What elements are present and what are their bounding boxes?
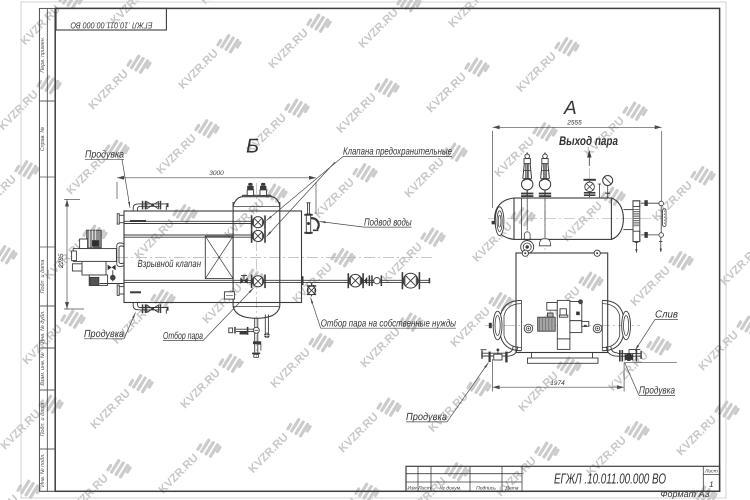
svg-text:KVZR.RU: KVZR.RU <box>89 387 133 431</box>
svg-text:2555: 2555 <box>566 120 582 127</box>
svg-text:Дата: Дата <box>504 485 518 491</box>
svg-text:KVZR.RU: KVZR.RU <box>493 135 537 179</box>
svg-text:3000: 3000 <box>209 170 224 177</box>
svg-text:KVZR.RU: KVZR.RU <box>179 367 223 411</box>
svg-text:KVZR.RU: KVZR.RU <box>651 179 695 223</box>
svg-text:KVZR.RU: KVZR.RU <box>157 452 201 496</box>
svg-text:KVZR.RU: KVZR.RU <box>0 408 43 452</box>
svg-text:KVZR.RU: KVZR.RU <box>697 329 741 373</box>
svg-text:KVZR.RU: KVZR.RU <box>357 6 401 50</box>
svg-text:1: 1 <box>709 480 713 489</box>
svg-text:KVZR.RU: KVZR.RU <box>471 220 515 264</box>
svg-text:Продувка: Продувка <box>84 329 124 340</box>
svg-text:Отбор пара: Отбор пара <box>163 331 203 342</box>
svg-text:ЕГЖЛ .10.011.00.000 ВО: ЕГЖЛ .10.011.00.000 ВО <box>554 472 666 488</box>
svg-text:KVZR.RU: KVZR.RU <box>517 370 561 414</box>
svg-text:Продувка: Продувка <box>85 150 124 161</box>
svg-text:Изм: Изм <box>407 485 417 491</box>
svg-text:KVZR.RU: KVZR.RU <box>561 200 605 244</box>
svg-text:Перв. примен.: Перв. примен. <box>40 37 46 73</box>
svg-text:А: А <box>563 98 577 119</box>
svg-text:KVZR.RU: KVZR.RU <box>87 68 131 112</box>
svg-text:KVZR.RU: KVZR.RU <box>0 173 19 217</box>
svg-text:KVZR.RU: KVZR.RU <box>313 176 357 220</box>
svg-text:KVZR.RU: KVZR.RU <box>425 71 469 115</box>
svg-text:KVZR.RU: KVZR.RU <box>743 478 750 500</box>
svg-text:Выход пара: Выход пара <box>559 134 618 148</box>
svg-text:Слив: Слив <box>655 310 679 321</box>
svg-text:Продувка: Продувка <box>406 412 447 423</box>
svg-text:KVZR.RU: KVZR.RU <box>67 472 111 500</box>
svg-text:KVZR.RU: KVZR.RU <box>247 431 291 475</box>
svg-text:Продувка: Продувка <box>639 386 675 397</box>
svg-text:Подвод воды: Подвод воды <box>364 217 412 228</box>
svg-text:Инв. № дубл.: Инв. № дубл. <box>40 310 46 343</box>
svg-text:KVZR.RU: KVZR.RU <box>675 414 719 458</box>
svg-text:KVZR.RU: KVZR.RU <box>177 47 221 91</box>
svg-text:Взрывной клапан: Взрывной клапан <box>138 259 202 270</box>
svg-text:Справ. №: Справ. № <box>40 127 46 152</box>
svg-text:KVZR.RU: KVZR.RU <box>199 0 243 7</box>
svg-text:KVZR.RU: KVZR.RU <box>403 156 447 200</box>
svg-text:KVZR.RU: KVZR.RU <box>337 411 381 455</box>
svg-text:KVZR.RU: KVZR.RU <box>335 91 379 135</box>
svg-text:Взам. инв. №: Взам. инв. № <box>40 352 46 386</box>
svg-text:Инв. № подл.: Инв. № подл. <box>40 453 46 486</box>
svg-text:KVZR.RU: KVZR.RU <box>269 346 313 390</box>
svg-text:KVZR.RU: KVZR.RU <box>291 261 335 305</box>
svg-text:KVZR.RU: KVZR.RU <box>155 132 199 176</box>
svg-text:KVZR.RU: KVZR.RU <box>629 264 673 308</box>
svg-text:KVZR.RU: KVZR.RU <box>515 50 559 94</box>
svg-text:KVZR.RU: KVZR.RU <box>133 217 177 261</box>
svg-text:Лист: Лист <box>704 469 718 475</box>
svg-text:KVZR.RU: KVZR.RU <box>0 88 41 132</box>
svg-text:KVZR.RU: KVZR.RU <box>267 27 311 71</box>
svg-text:Лист: Лист <box>417 485 431 491</box>
svg-text:Подпись: Подпись <box>476 485 496 491</box>
svg-text:KVZR.RU: KVZR.RU <box>495 455 539 499</box>
svg-text:KVZR.RU: KVZR.RU <box>447 0 491 30</box>
svg-text:KVZR.RU: KVZR.RU <box>111 302 155 346</box>
svg-text:Подп. и дата: Подп. и дата <box>40 260 46 294</box>
svg-text:№ докум.: № докум. <box>439 485 461 491</box>
svg-text:KVZR.RU: KVZR.RU <box>0 493 21 500</box>
svg-text:Б: Б <box>246 136 259 158</box>
svg-text:ЕГЖЛ .10.011.00.000 ВО: ЕГЖЛ .10.011.00.000 ВО <box>70 20 152 30</box>
svg-text:KVZR.RU: KVZR.RU <box>359 326 403 370</box>
svg-text:1974: 1974 <box>550 380 565 387</box>
svg-text:2285: 2285 <box>58 253 65 269</box>
svg-text:Подп. и дата: Подп. и дата <box>40 403 46 437</box>
svg-text:KVZR.RU: KVZR.RU <box>719 244 750 288</box>
svg-text:Формат А3: Формат А3 <box>660 489 709 499</box>
svg-text:Отбор пара на собственные нужд: Отбор пара на собственные нужды <box>321 318 457 329</box>
svg-text:Клапана предохранительные: Клапана предохранительные <box>343 147 452 158</box>
